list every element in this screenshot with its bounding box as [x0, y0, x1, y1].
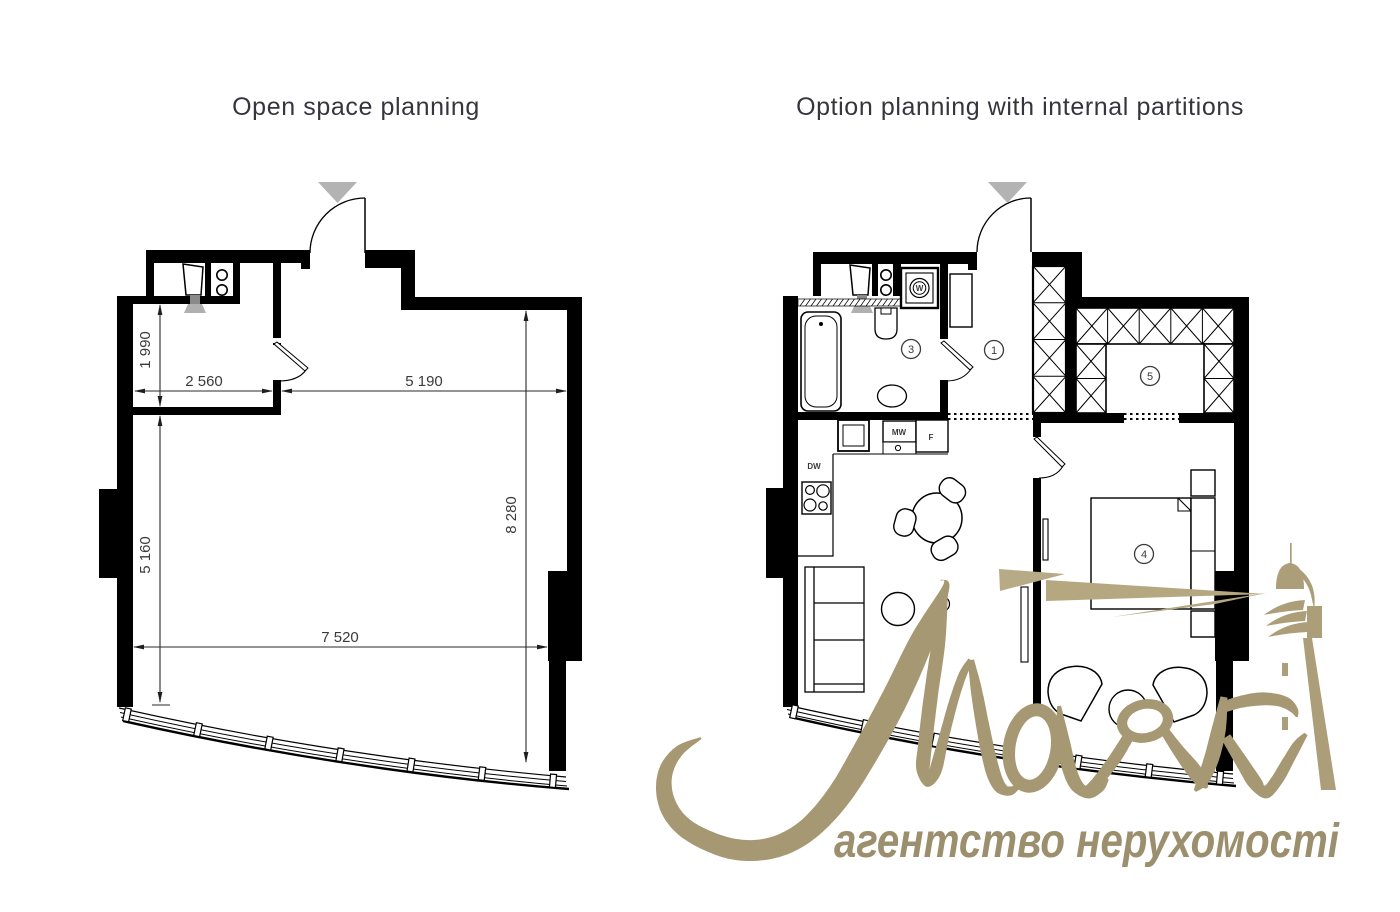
svg-text:1: 1 [991, 345, 997, 357]
svg-text:W: W [916, 284, 924, 293]
svg-text:Open space planning: Open space planning [232, 93, 480, 121]
svg-text:2 560: 2 560 [185, 373, 223, 390]
svg-text:1 990: 1 990 [137, 331, 154, 369]
svg-text:7 520: 7 520 [321, 629, 359, 646]
svg-text:F: F [929, 433, 934, 442]
svg-text:5: 5 [1147, 371, 1153, 383]
svg-text:8 280: 8 280 [503, 496, 520, 534]
svg-text:5 190: 5 190 [405, 373, 443, 390]
svg-text:3: 3 [908, 344, 914, 356]
svg-text:5 160: 5 160 [137, 536, 154, 574]
svg-text:Option planning with internal: Option planning with internal partitions [796, 93, 1244, 121]
svg-text:MW: MW [892, 428, 907, 437]
svg-text:4: 4 [1141, 549, 1147, 561]
svg-text:агентство нерухомості: агентство нерухомості [834, 815, 1340, 868]
svg-text:DW: DW [807, 462, 821, 471]
